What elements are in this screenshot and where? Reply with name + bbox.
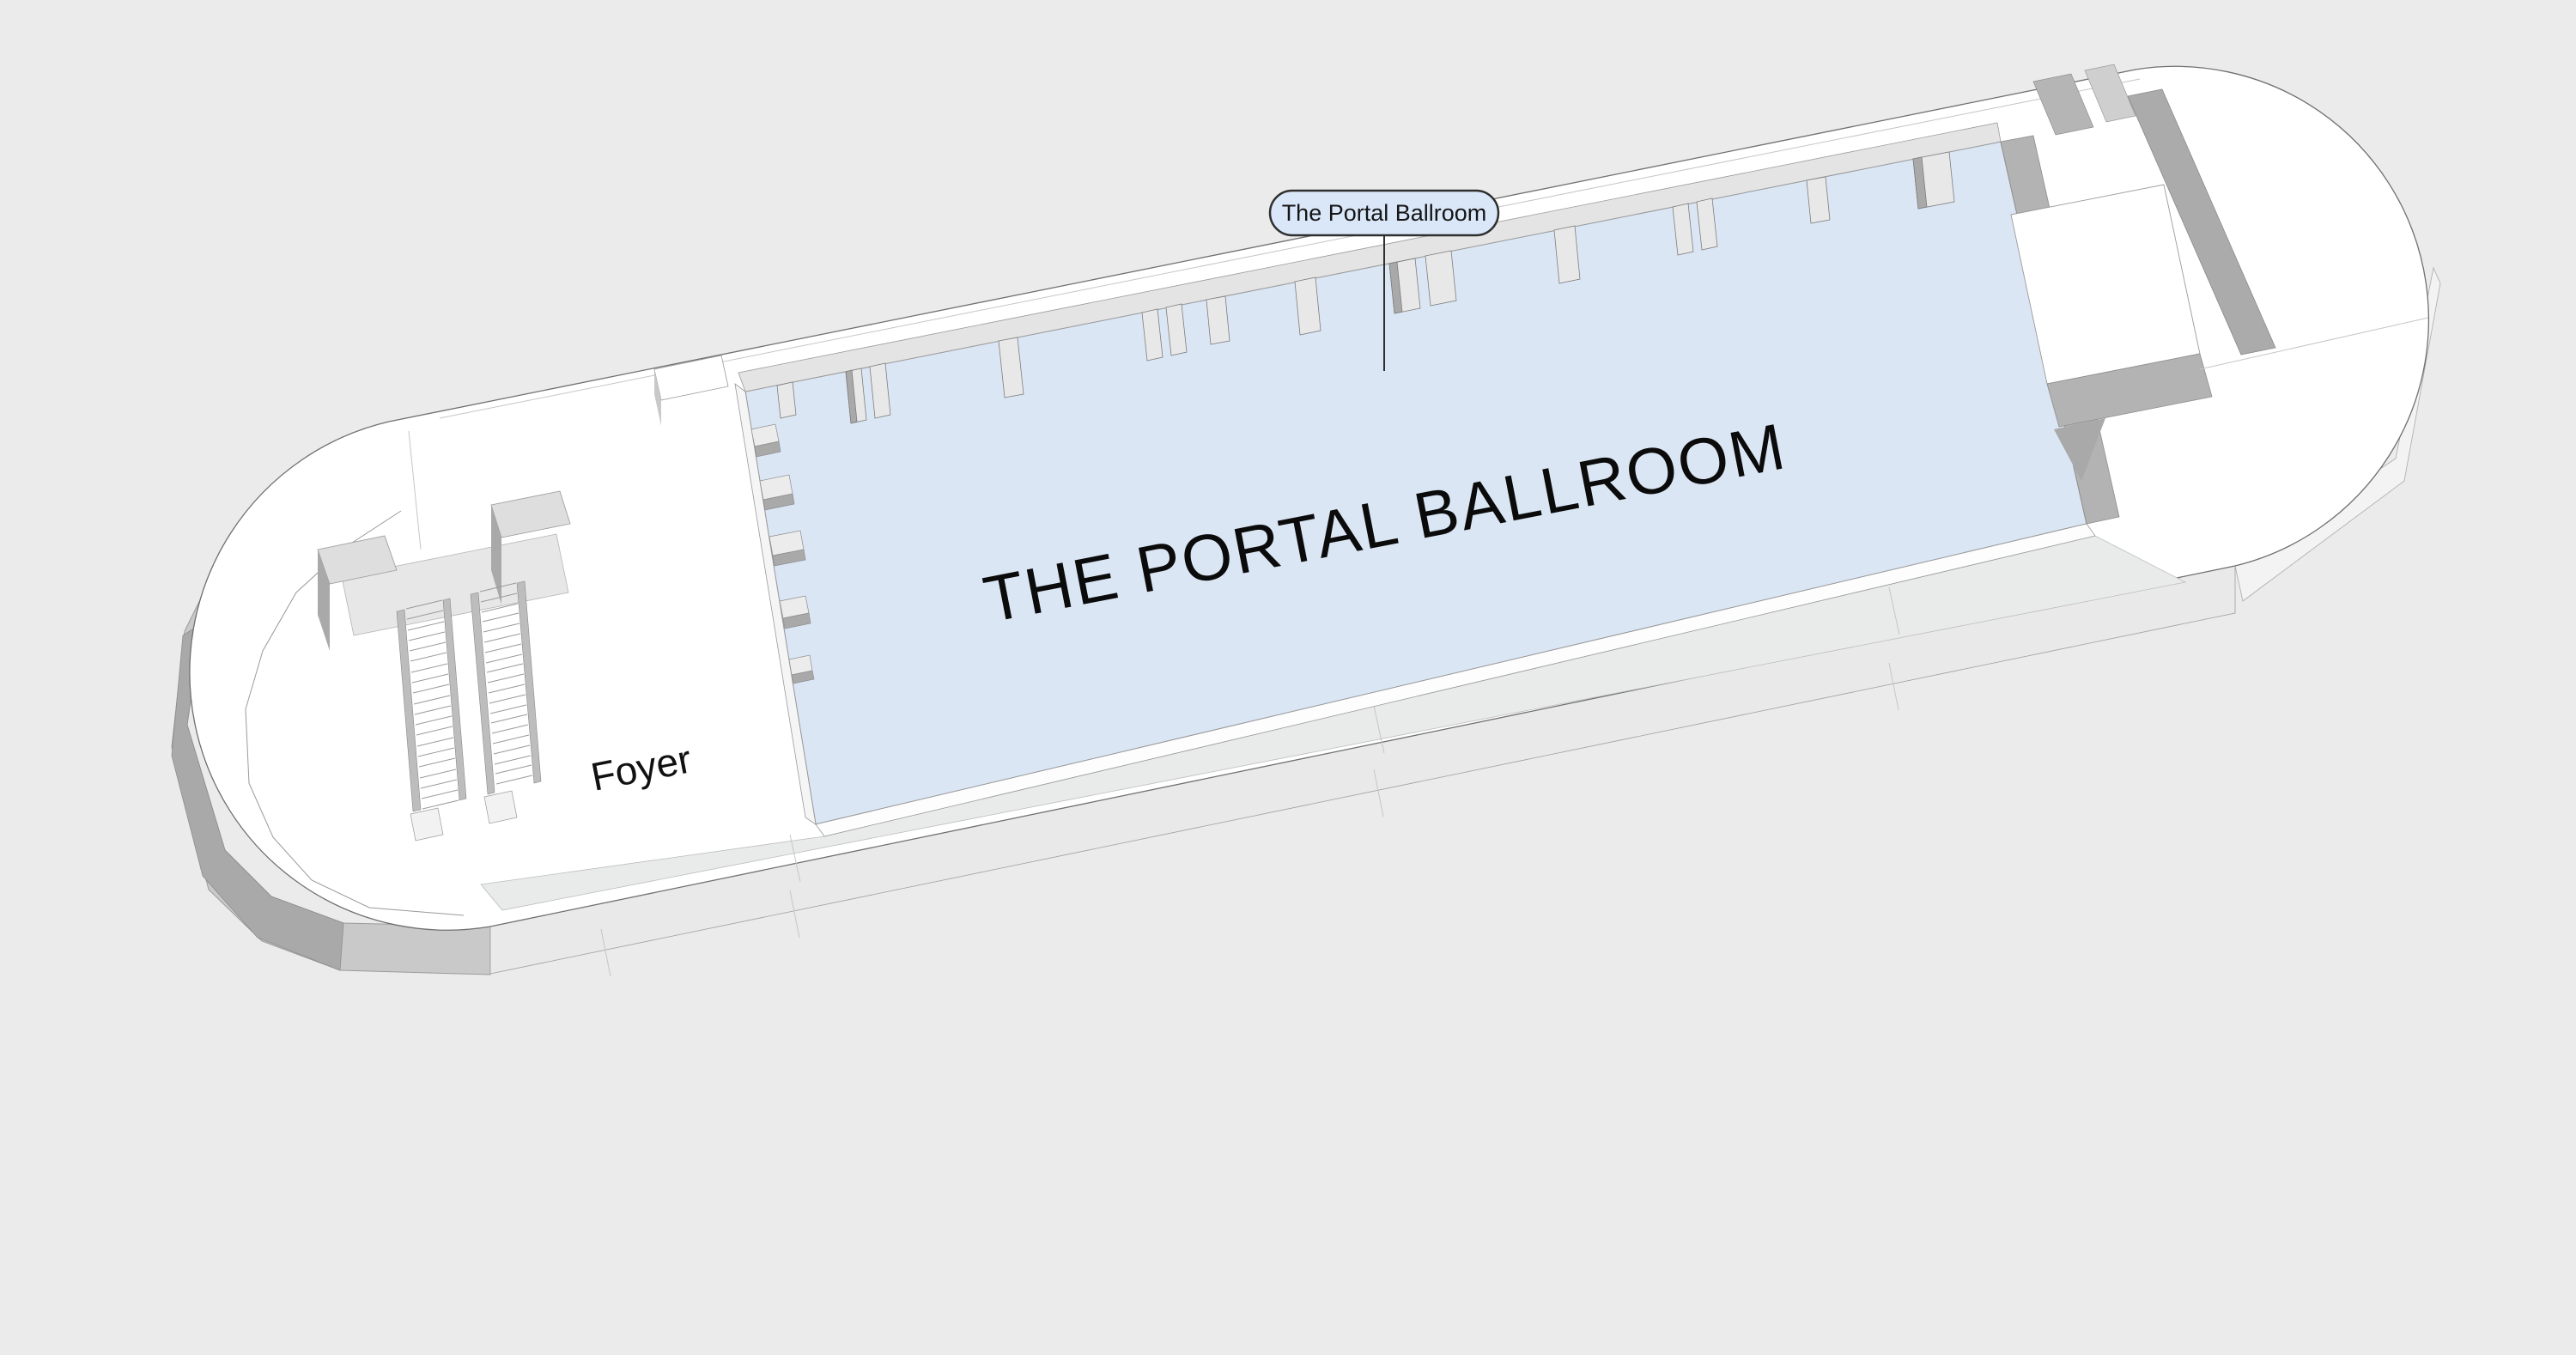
escalator-foot [410,808,443,841]
venue-map-viewport: THE PORTAL BALLROOM Foyer The Portal Bal… [0,0,2576,1355]
escalator-foot [484,791,517,823]
tooltip-label[interactable]: The Portal Ballroom [1282,200,1487,226]
venue-map-canvas: THE PORTAL BALLROOM Foyer The Portal Bal… [0,0,2576,1355]
